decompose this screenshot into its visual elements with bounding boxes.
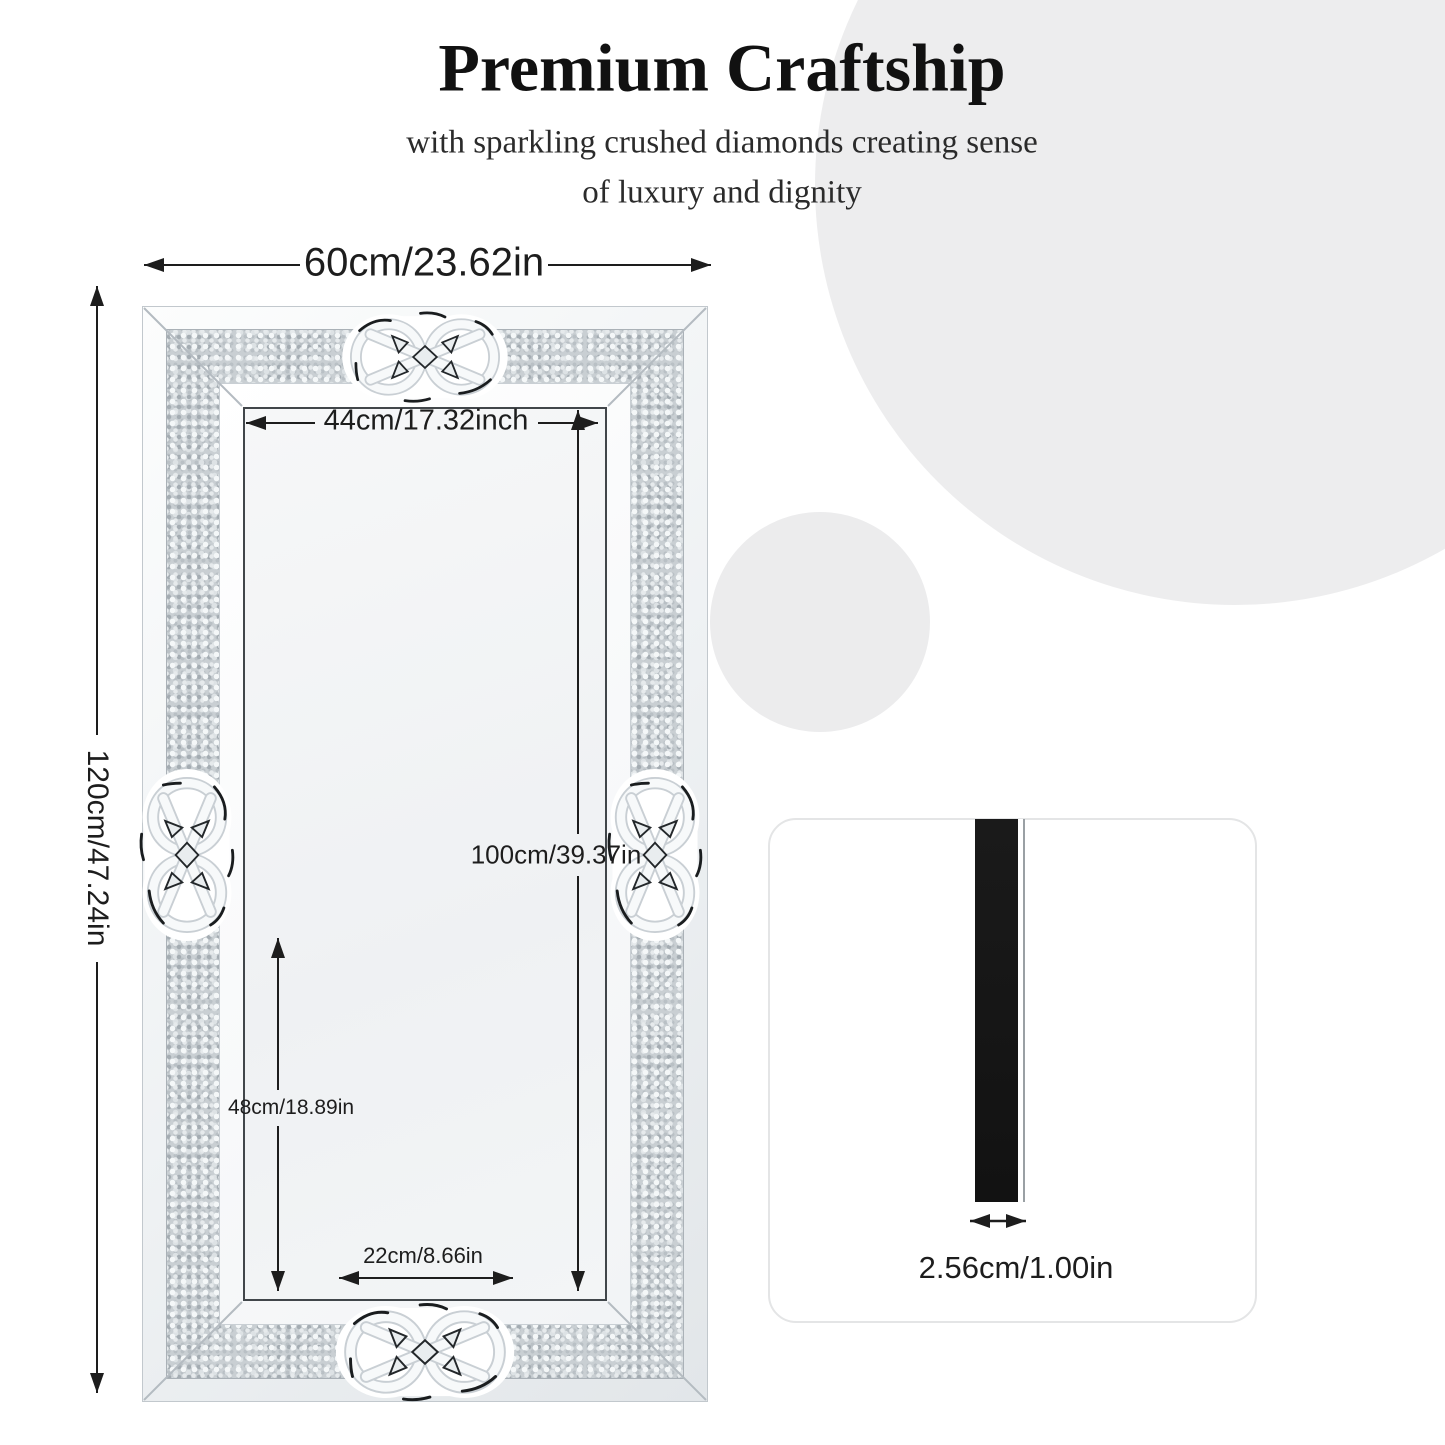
subtitle-line-1: with sparkling crushed diamonds creating…: [406, 125, 1037, 162]
mirror-side-profile: [975, 819, 1025, 1202]
dimension-label-inner-height: 100cm/39.37in: [471, 840, 642, 871]
dimension-label-bottom-width: 22cm/8.66in: [363, 1243, 483, 1269]
page-title: Premium Craftship: [438, 29, 1005, 108]
dimension-label-thickness: 2.56cm/1.00in: [919, 1250, 1114, 1286]
dimension-label-outer-height: 120cm/47.24in: [80, 750, 114, 947]
dimension-label-lower-height: 48cm/18.89in: [228, 1096, 354, 1120]
product-infographic: Premium Craftship with sparkling crushed…: [0, 0, 1445, 1445]
dimension-label-outer-width: 60cm/23.62in: [304, 241, 544, 286]
profile-bar-edge: [1023, 819, 1025, 1202]
profile-bar-body: [975, 819, 1018, 1202]
dimension-label-inner-width: 44cm/17.32inch: [324, 405, 529, 438]
background-circle-small: [710, 512, 930, 732]
subtitle-line-2: of luxury and dignity: [582, 175, 862, 212]
